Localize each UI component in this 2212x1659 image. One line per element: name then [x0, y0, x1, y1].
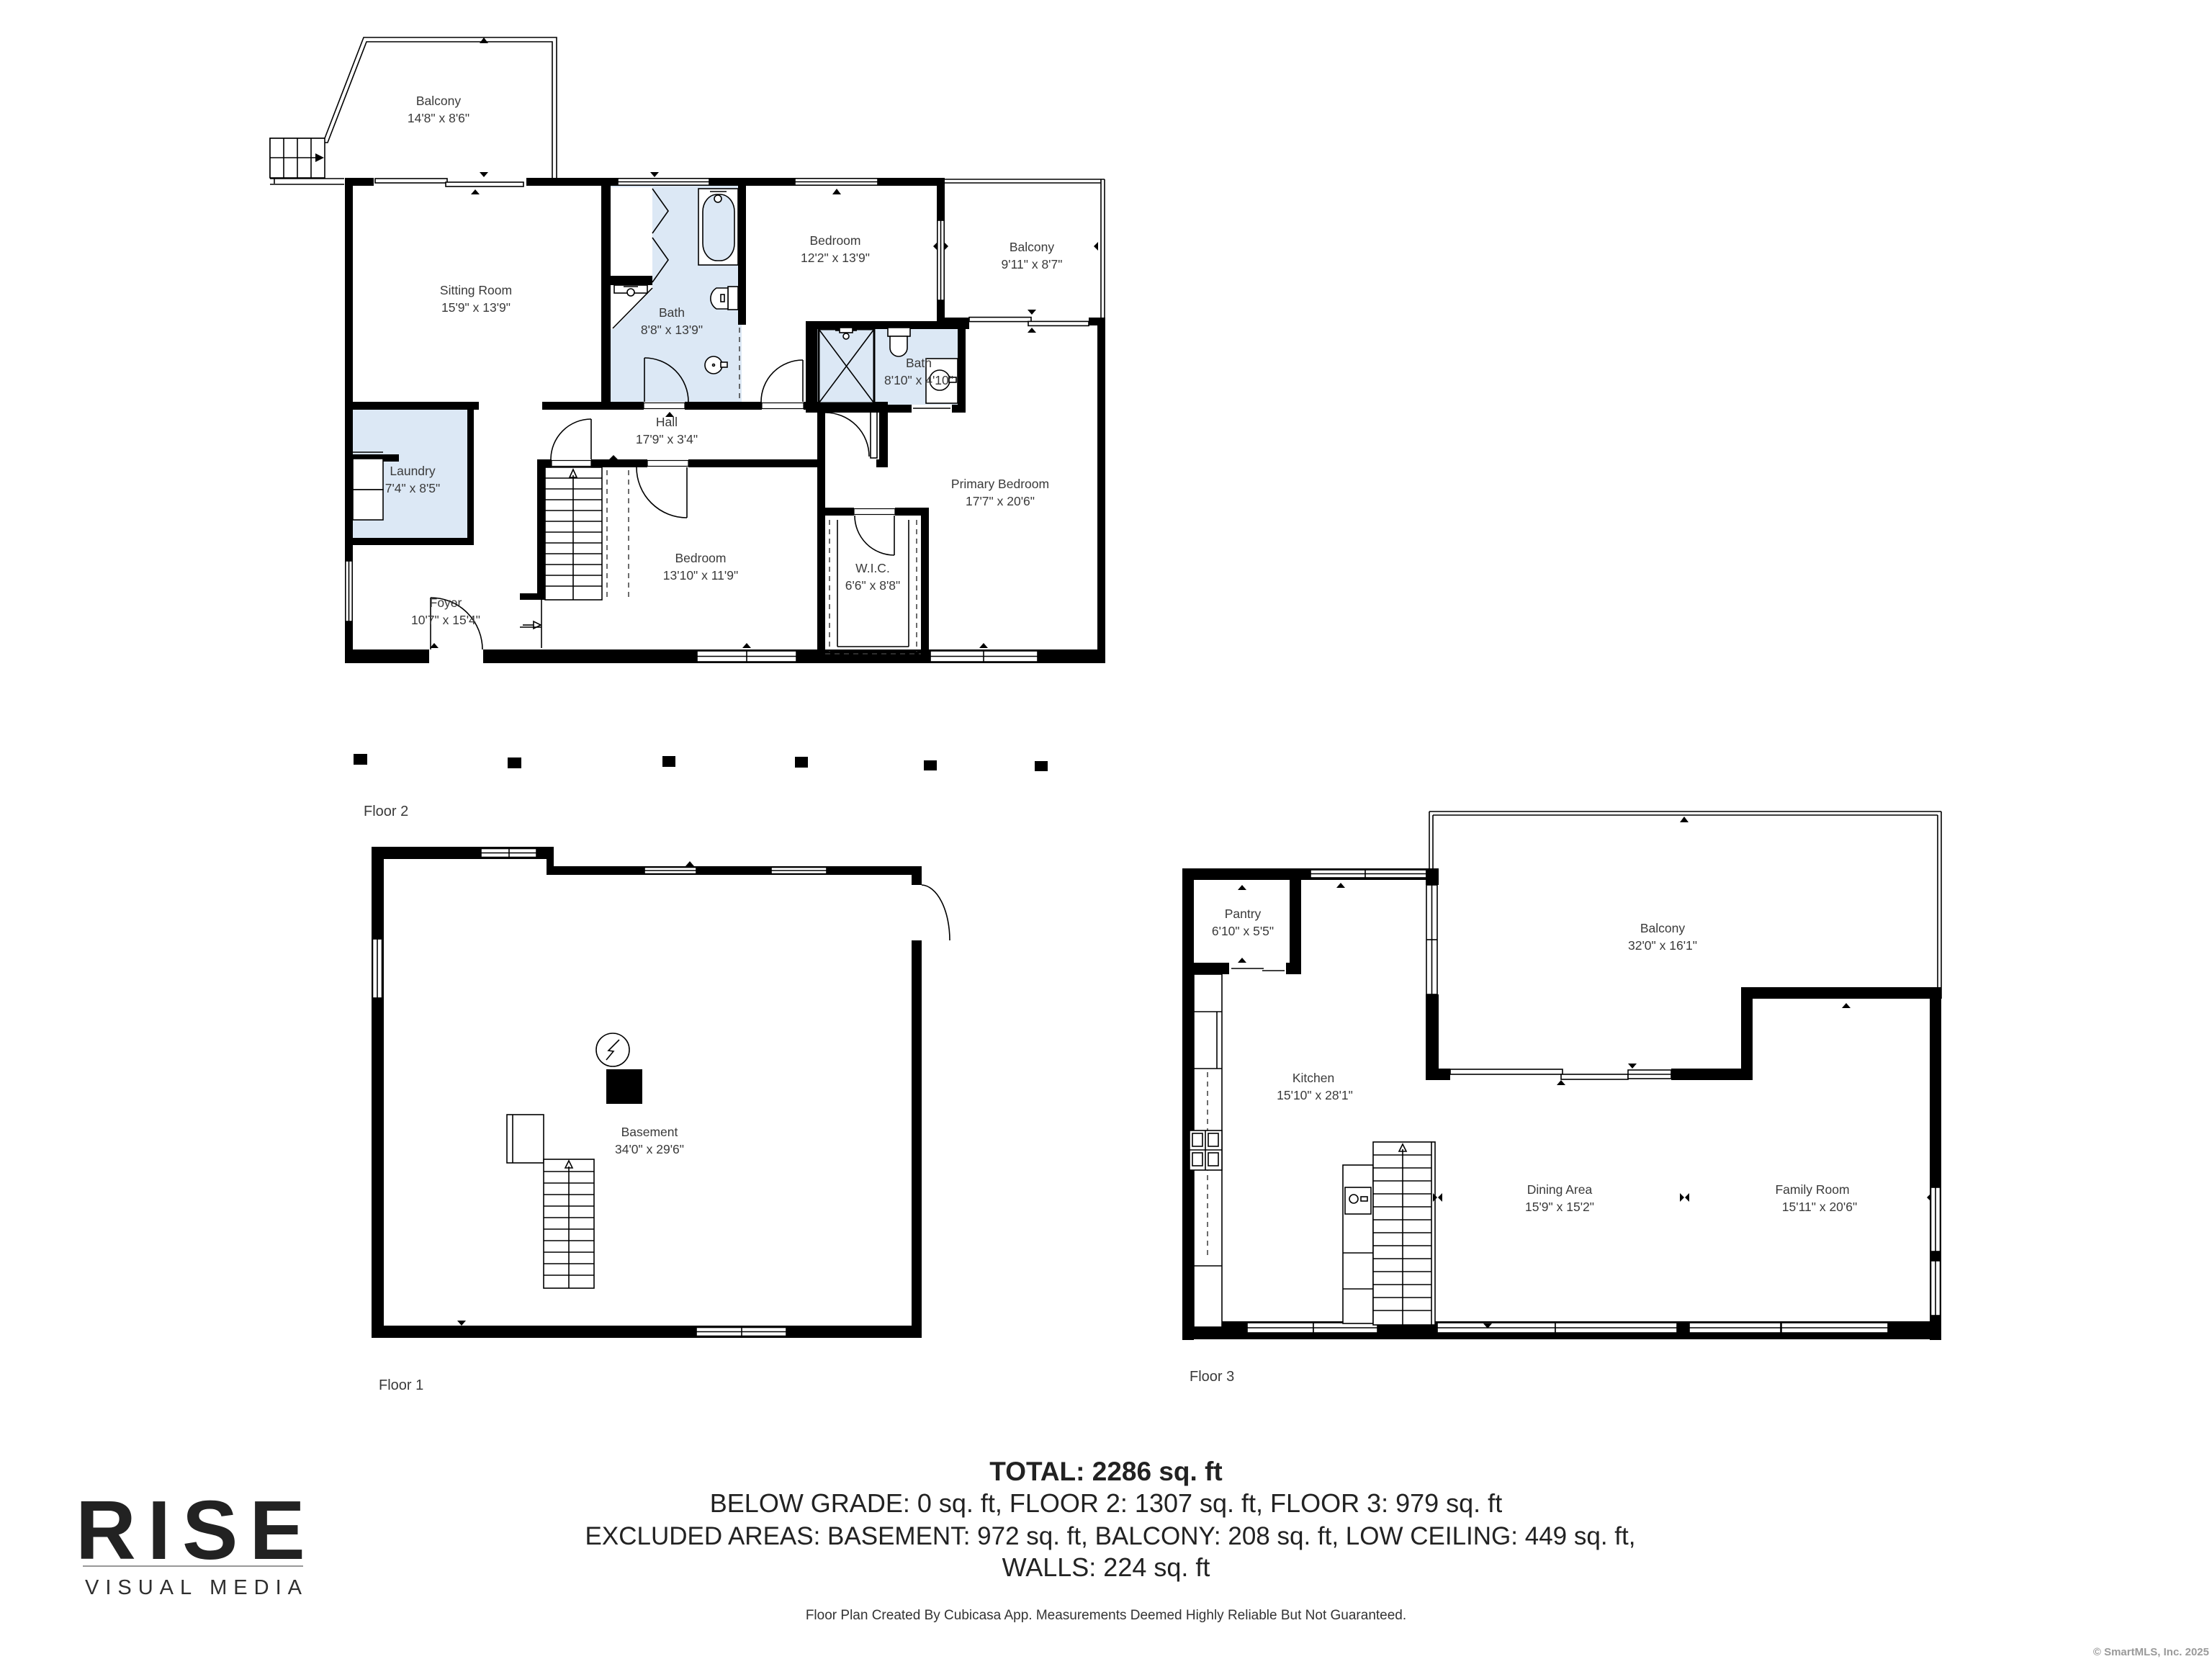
svg-text:14'8" x 8'6": 14'8" x 8'6" — [408, 111, 469, 125]
svg-text:10'7" x 15'4": 10'7" x 15'4" — [411, 613, 480, 627]
svg-text:7'4" x 8'5": 7'4" x 8'5" — [385, 481, 441, 495]
svg-text:Floor 1: Floor 1 — [379, 1377, 423, 1393]
svg-text:BELOW GRADE: 0 sq. ft, FLOOR 2: BELOW GRADE: 0 sq. ft, FLOOR 2: 1307 sq.… — [710, 1488, 1502, 1518]
svg-text:Bath: Bath — [906, 356, 932, 370]
svg-text:8'8" x 13'9": 8'8" x 13'9" — [641, 323, 703, 337]
svg-text:Bath: Bath — [659, 305, 685, 320]
svg-text:Dining Area: Dining Area — [1527, 1182, 1593, 1197]
svg-text:W.I.C.: W.I.C. — [855, 561, 890, 575]
svg-text:6'10" x 5'5": 6'10" x 5'5" — [1212, 924, 1274, 938]
svg-text:Foyer: Foyer — [430, 595, 462, 610]
svg-text:WALLS: 224 sq. ft: WALLS: 224 sq. ft — [1002, 1552, 1210, 1582]
svg-text:Balcony: Balcony — [1640, 921, 1686, 935]
svg-text:17'7" x 20'6": 17'7" x 20'6" — [966, 494, 1035, 508]
svg-text:Balcony: Balcony — [1010, 240, 1055, 254]
svg-text:13'10" x 11'9": 13'10" x 11'9" — [663, 568, 738, 583]
svg-text:Balcony: Balcony — [416, 94, 462, 108]
svg-text:Family Room: Family Room — [1775, 1182, 1849, 1197]
svg-text:9'11" x 8'7": 9'11" x 8'7" — [1002, 257, 1063, 271]
svg-text:© SmartMLS, Inc. 2025: © SmartMLS, Inc. 2025 — [2093, 1646, 2209, 1658]
svg-text:EXCLUDED AREAS: BASEMENT: 972: EXCLUDED AREAS: BASEMENT: 972 sq. ft, BA… — [585, 1522, 1636, 1550]
svg-text:15'10" x 28'1": 15'10" x 28'1" — [1277, 1088, 1353, 1102]
svg-text:15'9" x 15'2": 15'9" x 15'2" — [1525, 1200, 1594, 1214]
svg-text:Basement: Basement — [621, 1125, 678, 1139]
svg-text:Sitting Room: Sitting Room — [440, 283, 512, 297]
svg-text:Bedroom: Bedroom — [809, 233, 860, 248]
svg-text:VISUAL MEDIA: VISUAL MEDIA — [85, 1576, 308, 1599]
svg-text:15'11" x 20'6": 15'11" x 20'6" — [1782, 1200, 1857, 1214]
svg-text:Floor 3: Floor 3 — [1190, 1369, 1234, 1385]
svg-text:6'6" x 8'8": 6'6" x 8'8" — [845, 578, 901, 593]
svg-text:Floor Plan Created By Cubicasa: Floor Plan Created By Cubicasa App. Meas… — [806, 1608, 1406, 1623]
svg-text:8'10" x 4'10": 8'10" x 4'10" — [884, 373, 953, 387]
svg-text:32'0" x 16'1": 32'0" x 16'1" — [1628, 938, 1697, 953]
svg-text:34'0" x 29'6": 34'0" x 29'6" — [615, 1142, 684, 1156]
svg-text:12'2" x 13'9": 12'2" x 13'9" — [801, 251, 870, 265]
svg-text:Kitchen: Kitchen — [1292, 1071, 1334, 1085]
svg-text:Primary Bedroom: Primary Bedroom — [951, 477, 1049, 491]
svg-text:17'9" x 3'4": 17'9" x 3'4" — [636, 432, 698, 446]
svg-text:15'9" x 13'9": 15'9" x 13'9" — [441, 300, 511, 315]
svg-text:TOTAL: 2286 sq. ft: TOTAL: 2286 sq. ft — [989, 1457, 1222, 1486]
svg-text:Laundry: Laundry — [390, 464, 435, 478]
svg-text:Pantry: Pantry — [1225, 907, 1262, 921]
svg-text:Bedroom: Bedroom — [675, 551, 726, 565]
svg-text:Floor 2: Floor 2 — [364, 804, 408, 819]
svg-text:RISE: RISE — [76, 1483, 317, 1577]
